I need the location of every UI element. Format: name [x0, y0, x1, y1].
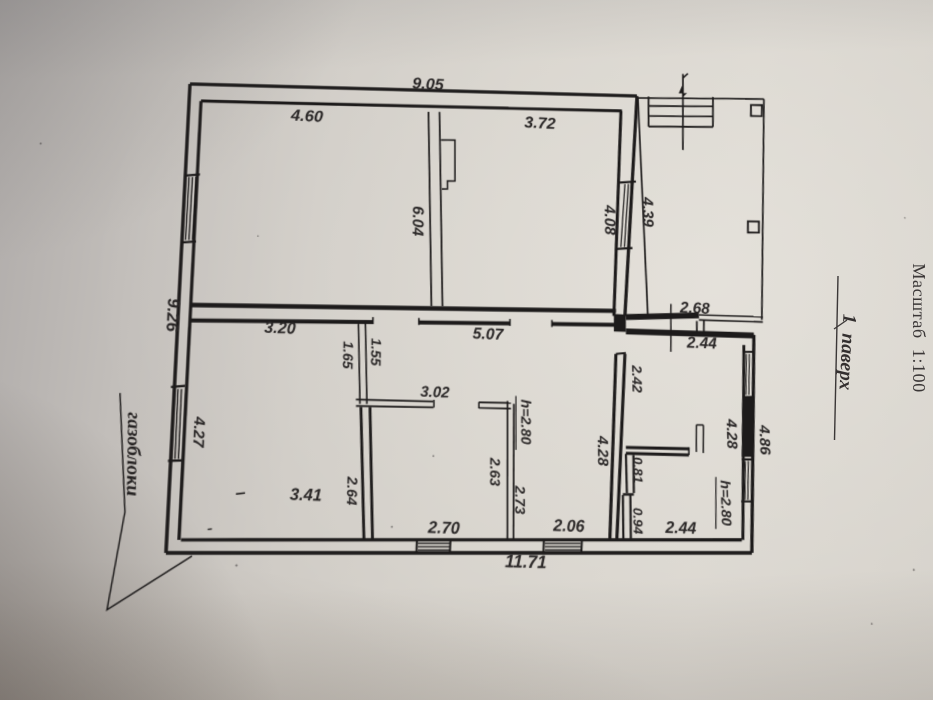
svg-text:Масштаб 1:100: Масштаб 1:100: [909, 263, 929, 392]
svg-text:1 паверх: 1 паверх: [835, 313, 860, 391]
